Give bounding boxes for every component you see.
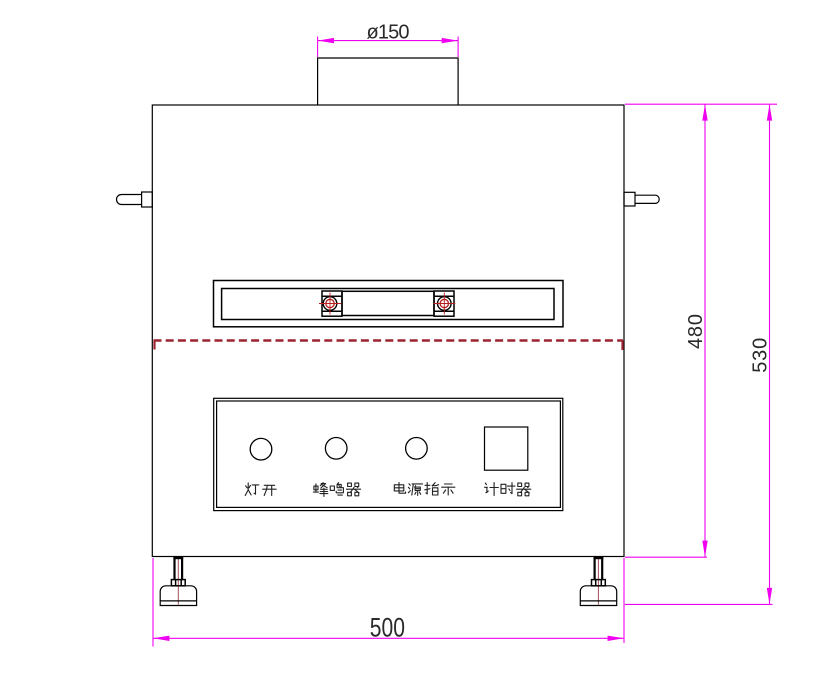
svg-text:530: 530 bbox=[750, 338, 772, 373]
svg-text:500: 500 bbox=[370, 613, 405, 643]
svg-text:ø150: ø150 bbox=[367, 22, 410, 44]
svg-text:480: 480 bbox=[685, 314, 707, 349]
